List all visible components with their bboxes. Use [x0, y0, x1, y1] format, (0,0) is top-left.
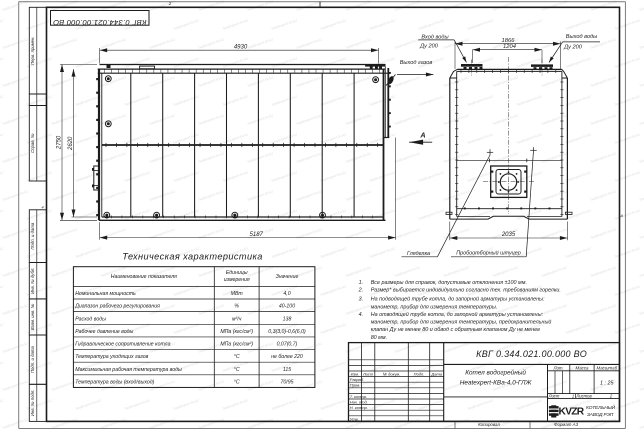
svg-text:Выход газов: Выход газов: [400, 60, 433, 66]
svg-text:Формат А3: Формат А3: [554, 422, 579, 427]
svg-text:Утв.: Утв.: [350, 416, 359, 421]
svg-text:0,3(3,0)-0,6(6,0): 0,3(3,0)-0,6(6,0): [268, 329, 306, 335]
svg-text:Изм.: Изм.: [351, 372, 360, 377]
svg-text:МПа (кгс/см²): МПа (кгс/см²): [220, 342, 253, 348]
svg-text:Масса: Масса: [576, 365, 590, 370]
svg-text:Номинальная мощность: Номинальная мощность: [75, 291, 136, 297]
svg-text:Максимальная рабочая температу: Максимальная рабочая температура воды: [75, 367, 182, 373]
svg-text:0,07(0,7): 0,07(0,7): [277, 342, 298, 348]
svg-text:Температура воды (вход/выход): Температура воды (вход/выход): [75, 379, 154, 385]
svg-text:м³/ч: м³/ч: [232, 316, 242, 322]
svg-text:Инв. № подл.: Инв. № подл.: [30, 390, 35, 417]
svg-text:2750: 2750: [57, 135, 63, 150]
svg-text:1866: 1866: [502, 38, 516, 44]
svg-text:Ду 200: Ду 200: [563, 45, 583, 51]
svg-text:Перв. примен.: Перв. примен.: [30, 36, 35, 65]
svg-text:манометр, прибор для измерения: манометр, прибор для измерения температу…: [371, 319, 552, 326]
svg-text:А: А: [620, 214, 624, 218]
svg-text:измерения: измерения: [224, 277, 250, 283]
svg-text:Техническая характеристика: Техническая характеристика: [122, 252, 262, 262]
svg-text:2.: 2.: [358, 288, 364, 294]
svg-text:Разраб.: Разраб.: [350, 377, 364, 382]
svg-text:ЗАВОД РЭП: ЗАВОД РЭП: [587, 412, 614, 418]
svg-text:2035: 2035: [501, 232, 516, 238]
svg-text:Дата: Дата: [430, 372, 442, 377]
svg-text:4,0: 4,0: [283, 291, 290, 297]
svg-text:Диапазон рабочего регулировани: Диапазон рабочего регулирования: [74, 304, 160, 310]
svg-text:1204: 1204: [503, 44, 516, 50]
svg-text:Рабочее давление воды: Рабочее давление воды: [75, 329, 133, 335]
svg-text:40-100: 40-100: [279, 304, 295, 310]
svg-text:70/95: 70/95: [281, 379, 294, 385]
svg-text:°С: °С: [234, 379, 240, 385]
svg-text:Масштаб: Масштаб: [597, 365, 618, 370]
svg-text:№ докум.: № докум.: [383, 372, 401, 377]
svg-text:Все размеры для справок, допус: Все размеры для справок, допустимые откл…: [371, 280, 527, 286]
svg-text:Ду 200: Ду 200: [419, 44, 439, 50]
svg-text:КВГ 0.344.021.00.000 ВО: КВГ 0.344.021.00.000 ВО: [53, 18, 147, 27]
svg-text:Единицы: Единицы: [226, 270, 248, 276]
svg-text:клапан Ду не менее 80 и обвод: клапан Ду не менее 80 и обвод с обратным…: [371, 327, 540, 333]
svg-text:Подп. и дата: Подп. и дата: [30, 222, 35, 250]
svg-text:Котел водогрейный: Котел водогрейный: [465, 368, 526, 376]
svg-text:KVZR: KVZR: [559, 406, 585, 417]
svg-text:115: 115: [283, 367, 291, 373]
svg-text:Подп. и дата: Подп. и дата: [30, 346, 35, 374]
svg-text:Пробоотборный штуцер: Пробоотборный штуцер: [456, 250, 521, 257]
svg-text:138: 138: [283, 316, 292, 322]
svg-text:На отводящей трубе котла, до з: На отводящей трубе котла, до запорной ар…: [371, 311, 544, 318]
svg-text:МВт: МВт: [231, 291, 244, 297]
svg-text:МПа (кгс/см²): МПа (кгс/см²): [220, 329, 253, 335]
svg-text:2620: 2620: [68, 136, 74, 151]
svg-text:Heatexpert-КВа-4,0-ГЛЖ: Heatexpert-КВа-4,0-ГЛЖ: [460, 379, 533, 386]
svg-text:2: 2: [168, 1, 172, 6]
svg-text:3.: 3.: [359, 297, 364, 303]
svg-text:Выход воды: Выход воды: [566, 34, 597, 40]
svg-text:4930: 4930: [234, 44, 248, 50]
svg-text:Нач. отд.: Нач. отд.: [350, 400, 368, 405]
svg-text:На подводящей трубе котла, до: На подводящей трубе котла, до запорной а…: [371, 296, 545, 303]
svg-text:Температура уходящих газов: Температура уходящих газов: [75, 354, 148, 360]
svg-text:°С: °С: [234, 354, 240, 360]
svg-text:Копировал: Копировал: [478, 422, 500, 427]
svg-text:КВГ 0.344.021.00.000 ВО: КВГ 0.344.021.00.000 ВО: [476, 349, 587, 359]
svg-text:4.: 4.: [359, 312, 364, 318]
svg-text:Значение: Значение: [276, 274, 299, 280]
svg-text:Подп.: Подп.: [414, 372, 425, 377]
svg-text:не более 220: не более 220: [271, 354, 303, 360]
svg-text:Размер* выбирается индивидуаль: Размер* выбирается индивидуально согласн…: [371, 288, 561, 294]
svg-text:5187: 5187: [250, 232, 264, 238]
svg-text:Справ. №: Справ. №: [30, 133, 35, 153]
svg-text:4: 4: [41, 206, 43, 210]
svg-text:Лист: Лист: [362, 372, 374, 377]
svg-text:Т. контр.: Т. контр.: [350, 394, 367, 399]
svg-text:А: А: [419, 131, 425, 140]
svg-text:80 мм.: 80 мм.: [371, 335, 387, 341]
svg-text:Инв. № дубл.: Инв. № дубл.: [30, 267, 35, 293]
svg-text:%: %: [234, 304, 239, 310]
svg-text:Н. контр.: Н. контр.: [350, 405, 368, 410]
svg-text:Гляделка: Гляделка: [407, 251, 430, 257]
svg-text:Взам. инв. №: Взам. инв. №: [30, 303, 35, 330]
svg-text:1 : 25: 1 : 25: [600, 381, 614, 387]
svg-text:1: 1: [572, 394, 574, 399]
svg-text:Вход воды: Вход воды: [421, 34, 448, 40]
svg-text:Лит.: Лит.: [552, 365, 563, 370]
svg-text:°С: °С: [234, 367, 240, 373]
svg-text:Листов: Листов: [575, 394, 592, 399]
svg-text:Наименование показателя: Наименование показателя: [111, 274, 177, 280]
svg-text:Расход воды: Расход воды: [75, 316, 106, 322]
svg-text:Гидравлическое сопротивление к: Гидравлическое сопротивление котла: [75, 342, 170, 348]
svg-text:Лист: Лист: [548, 394, 560, 399]
svg-text:манометр, прибор для измерения: манометр, прибор для измерения температу…: [371, 305, 498, 311]
svg-text:1.: 1.: [359, 280, 364, 286]
svg-text:Пров.: Пров.: [350, 383, 361, 388]
